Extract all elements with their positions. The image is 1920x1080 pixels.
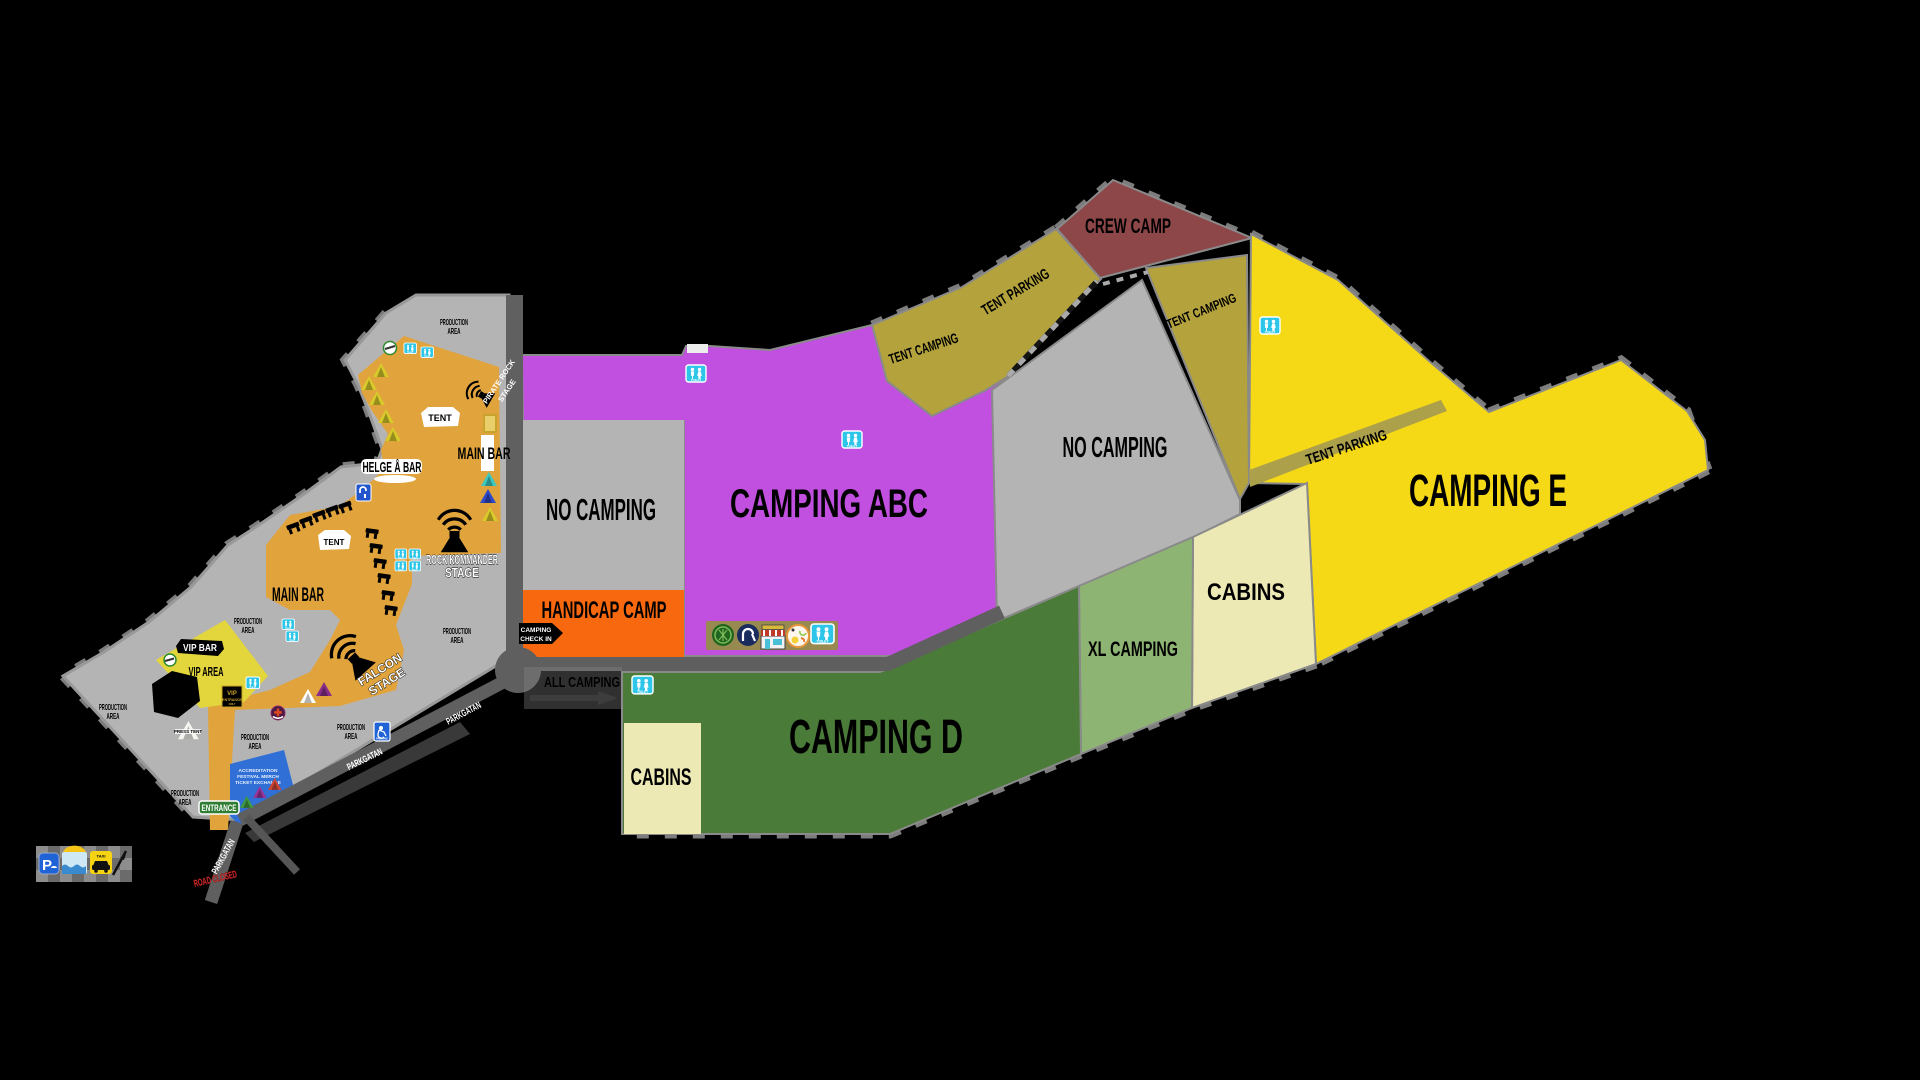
svg-text:AREA: AREA [451, 635, 464, 645]
svg-text:CHECK IN: CHECK IN [520, 636, 552, 643]
svg-text:FESTIVAL MERCH: FESTIVAL MERCH [237, 774, 279, 780]
svg-text:CABINS: CABINS [1207, 579, 1285, 606]
svg-text:TENT: TENT [324, 538, 345, 547]
svg-text:P: P [42, 857, 52, 874]
svg-text:ONLY: ONLY [229, 703, 236, 706]
svg-text:CAMPING ABC: CAMPING ABC [730, 482, 928, 526]
svg-text:VIP AREA: VIP AREA [189, 664, 224, 679]
svg-text:PRESS TENT: PRESS TENT [174, 729, 203, 734]
svg-text:CAMPING E: CAMPING E [1409, 465, 1567, 516]
svg-text:NO CAMPING: NO CAMPING [546, 492, 656, 527]
svg-text:NO CAMPING: NO CAMPING [1063, 432, 1168, 464]
svg-text:VIP BAR: VIP BAR [183, 642, 217, 654]
svg-text:ENTRANCE: ENTRANCE [202, 803, 237, 814]
svg-text:CAMPING D: CAMPING D [789, 711, 963, 764]
svg-text:ENTRANCE: ENTRANCE [222, 698, 242, 702]
svg-text:ALL CAMPING: ALL CAMPING [544, 674, 620, 691]
svg-text:AREA: AREA [107, 711, 120, 721]
svg-text:CAMPING: CAMPING [521, 627, 552, 634]
svg-text:MAIN BAR: MAIN BAR [458, 444, 511, 463]
svg-text:TENT: TENT [428, 413, 452, 423]
svg-text:AREA: AREA [249, 741, 262, 751]
svg-text:AREA: AREA [345, 731, 358, 741]
svg-text:ACCREDITATION: ACCREDITATION [239, 768, 279, 774]
svg-text:CABINS: CABINS [631, 764, 692, 791]
svg-text:AREA: AREA [242, 625, 255, 635]
svg-text:AREA: AREA [448, 326, 461, 336]
svg-text:AREA: AREA [179, 797, 192, 807]
svg-text:TAXI: TAXI [97, 854, 106, 859]
svg-text:HELGE Å BAR: HELGE Å BAR [363, 459, 422, 476]
svg-text:VIP: VIP [227, 691, 237, 697]
svg-text:XL CAMPING: XL CAMPING [1088, 638, 1178, 661]
svg-text:MAIN BAR: MAIN BAR [272, 585, 324, 606]
svg-text:CREW CAMP: CREW CAMP [1085, 215, 1171, 238]
svg-text:STAGE: STAGE [445, 565, 479, 580]
svg-text:PARKING: PARKING [376, 737, 388, 741]
svg-text:HANDICAP CAMP: HANDICAP CAMP [542, 597, 667, 624]
